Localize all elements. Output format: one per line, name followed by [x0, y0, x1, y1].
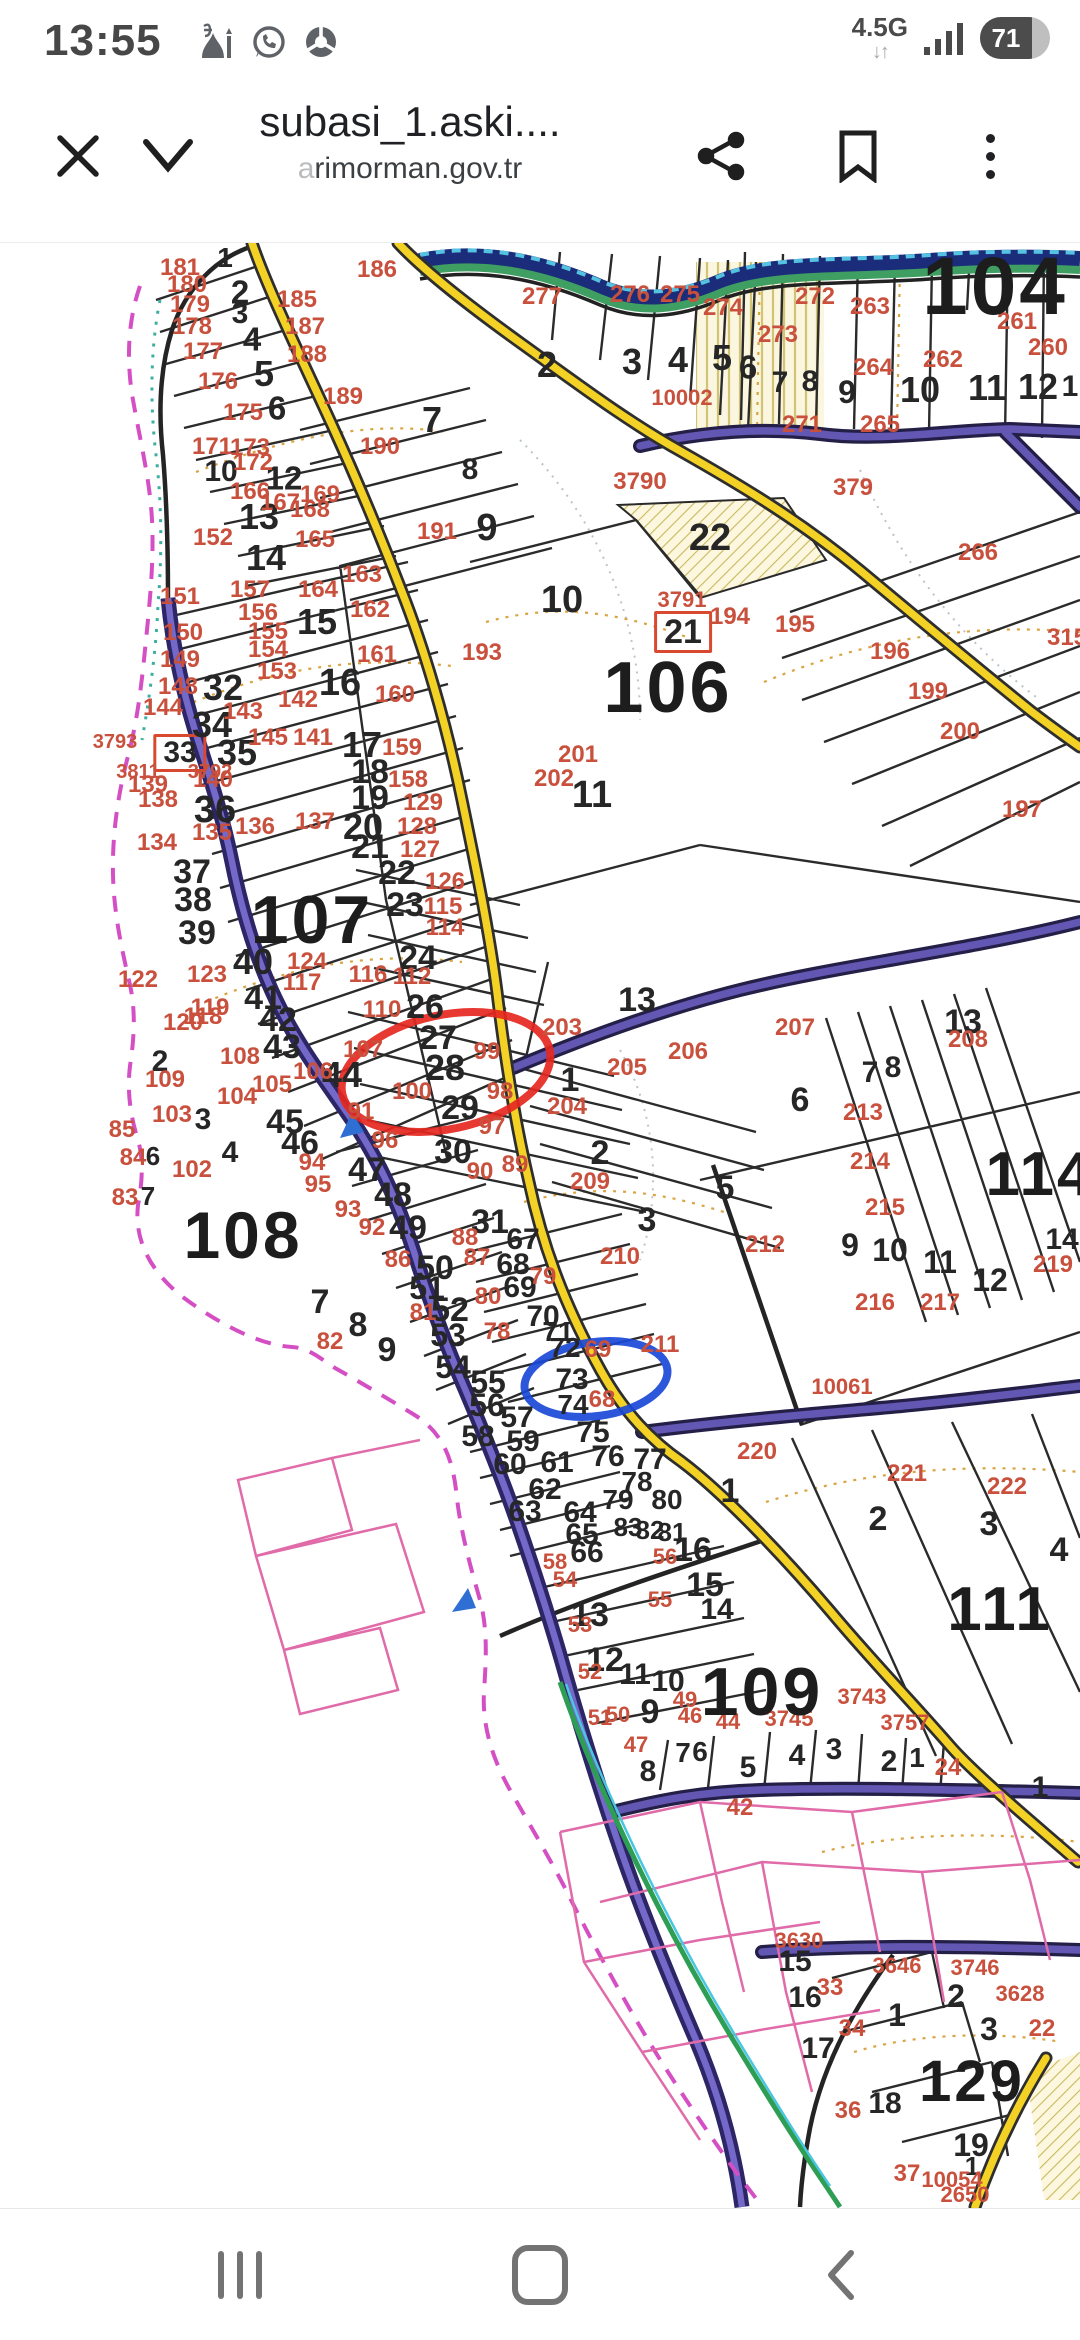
battery-percent: 71: [991, 23, 1020, 54]
screen: 1234567810121314234567891011121922102111…: [0, 0, 1080, 2340]
status-bar: 13:55 4.5G ↓↑: [0, 0, 1080, 90]
bookmark-button[interactable]: [818, 116, 898, 196]
share-button[interactable]: [682, 116, 762, 196]
signal-icon: [922, 18, 966, 58]
home-button[interactable]: [480, 2209, 600, 2340]
battery-indicator: 71: [980, 17, 1050, 59]
back-button[interactable]: [780, 2209, 900, 2340]
chrome-icon: [302, 23, 340, 61]
blue-annotation-ellipse: [520, 1332, 673, 1425]
river: [168, 598, 742, 2207]
close-button[interactable]: [38, 116, 118, 196]
pdf-viewer-header: subasi_1.aski.... arimorman.gov.tr: [0, 90, 1080, 243]
more-options-button[interactable]: [950, 116, 1030, 196]
prayer-app-icon: [196, 22, 236, 62]
stream-line-highlight: [566, 1684, 830, 2186]
recents-button[interactable]: [180, 2209, 300, 2340]
hatched-forest-areas: [618, 262, 1080, 2200]
collapse-button[interactable]: [128, 116, 208, 196]
red-annotation-ellipse: [330, 994, 561, 1150]
map-viewport[interactable]: 1234567810121314234567891011121922102111…: [0, 0, 1080, 2340]
document-source-url: arimorman.gov.tr: [210, 152, 610, 186]
navigation-bar: [0, 2208, 1080, 2340]
cadastre-map-image: [0, 0, 1080, 2340]
network-indicator: 4.5G ↓↑: [852, 14, 908, 62]
status-time: 13:55: [44, 16, 162, 66]
document-title: subasi_1.aski....: [210, 98, 610, 146]
whatsapp-icon: [250, 23, 288, 61]
